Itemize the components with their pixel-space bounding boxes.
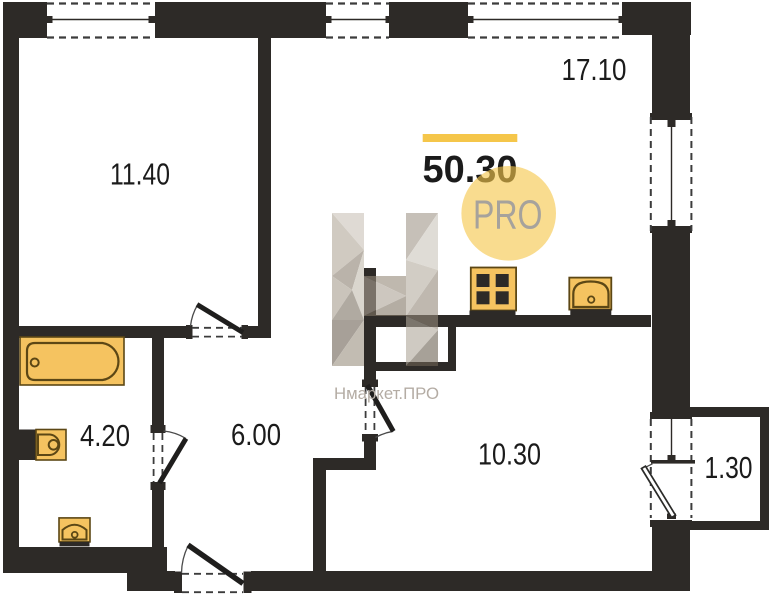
svg-text:PRO: PRO [473,192,543,238]
svg-text:1.30: 1.30 [705,450,753,485]
svg-text:Нмаркет.ПРО: Нмаркет.ПРО [334,385,439,403]
svg-text:11.40: 11.40 [110,157,170,192]
svg-text:6.00: 6.00 [231,417,281,452]
svg-text:10.30: 10.30 [478,437,541,472]
svg-text:17.10: 17.10 [562,52,627,87]
svg-text:4.20: 4.20 [80,418,130,453]
